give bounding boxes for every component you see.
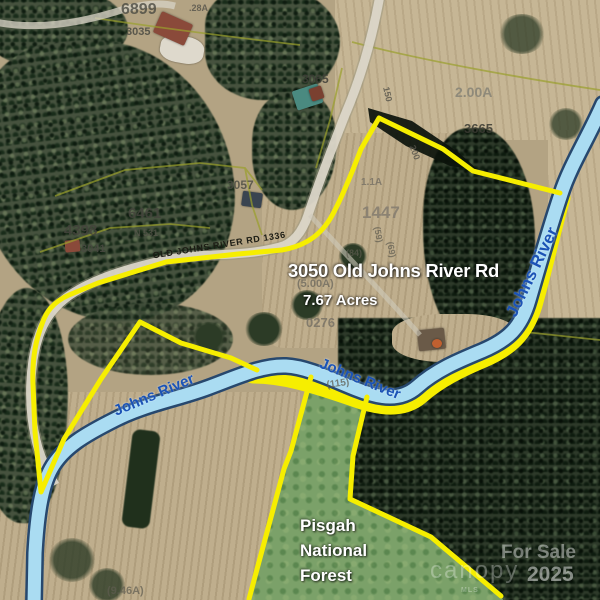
parcel-label: (69) (385, 241, 397, 258)
year-watermark: 2025 (527, 564, 574, 585)
parcel-label: 3035 (126, 27, 150, 38)
parcel-label: N 531 (134, 229, 158, 238)
parcel-label: 0276 (306, 316, 335, 329)
listing-address-label: 3050 Old Johns River Rd (288, 262, 499, 281)
parcel-label: (59) (372, 226, 384, 243)
parcel-label: 3057 (227, 179, 254, 191)
parcel-label: 6461 (128, 206, 161, 221)
canopy-watermark: canopy (430, 559, 519, 583)
parcel-label: 1.1A (361, 178, 382, 188)
parcel-label: 2.00A (455, 85, 492, 99)
forest-label-line: National (300, 538, 367, 563)
forest-label-line: Pisgah (300, 513, 367, 538)
parcel-label: 3065 (302, 73, 329, 85)
parcel-label: 4398 (64, 223, 97, 238)
aerial-parcel-map: 6899.28A303530652.00A36651.1A14473057646… (0, 0, 600, 600)
mls-watermark: MLS (461, 587, 479, 594)
pisgah-national-forest-label: Pisgah National Forest (300, 513, 367, 588)
parcel-label: 3041 (81, 244, 105, 255)
parcel-label: 6899 (121, 2, 157, 18)
parcel-label: 3665 (464, 122, 493, 135)
parcel-label: 1447 (362, 204, 400, 221)
parcel-label: (9.46A) (107, 586, 144, 597)
parcel-label: (84) (346, 249, 362, 258)
listing-acreage-label: 7.67 Acres (303, 293, 378, 308)
forest-label-line: Forest (300, 563, 367, 588)
parcel-label: 150 (381, 86, 393, 103)
parcel-label: .28A (189, 4, 208, 13)
